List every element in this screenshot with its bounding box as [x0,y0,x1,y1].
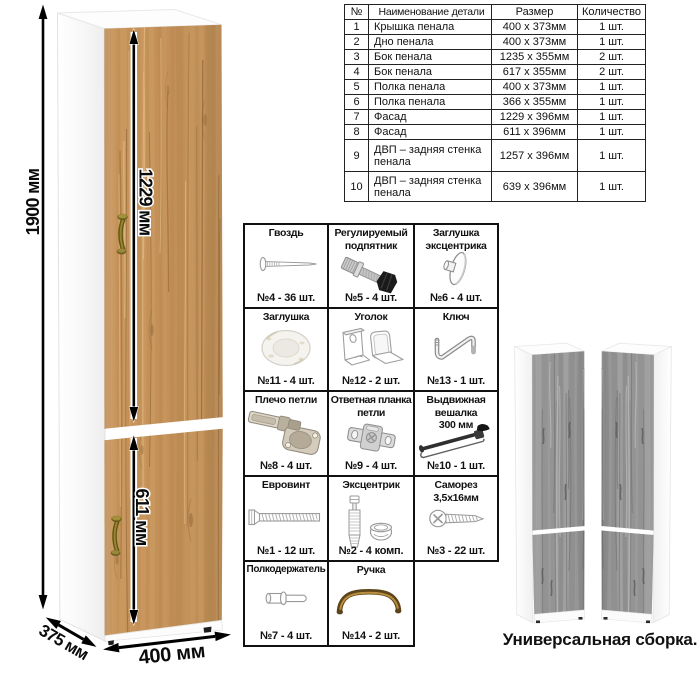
svg-text:1900 мм: 1900 мм [23,168,43,235]
svg-text:611 мм: 611 мм [132,488,152,545]
svg-text:1229 мм: 1229 мм [136,169,156,236]
